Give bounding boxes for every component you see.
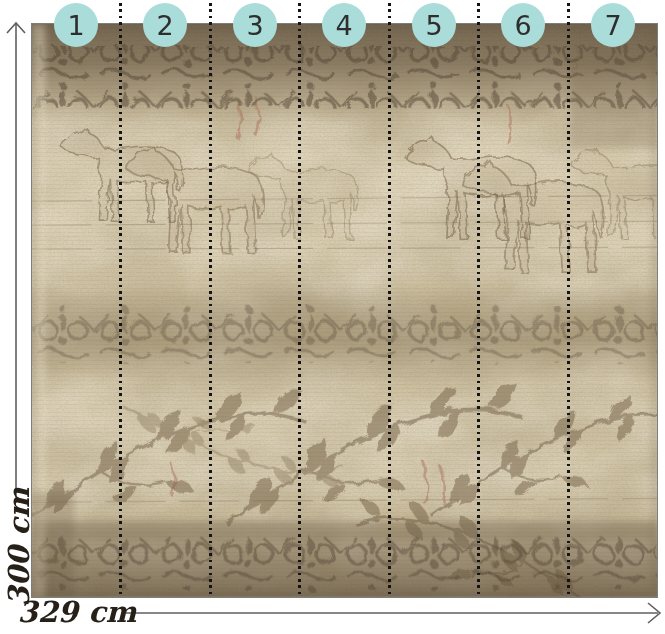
panel-number: 2 (156, 12, 173, 39)
panel-badge-6: 6 (501, 3, 545, 47)
mural-preview (31, 23, 658, 598)
panel-number: 5 (425, 12, 442, 39)
panel-badge-1: 1 (54, 3, 98, 47)
height-dimension-arrow (0, 16, 34, 502)
panel-separator (567, 3, 570, 597)
panel-number: 6 (514, 12, 531, 39)
panel-number: 7 (604, 12, 621, 39)
panel-separator (477, 3, 480, 597)
panel-separator (209, 3, 212, 597)
width-dimension-arrow (118, 598, 665, 630)
panel-number: 4 (335, 12, 352, 39)
panel-separator (119, 3, 122, 597)
panel-badge-5: 5 (412, 3, 456, 47)
panel-badge-2: 2 (143, 3, 187, 47)
panel-number: 1 (67, 12, 84, 39)
panel-separator (298, 3, 301, 597)
panel-badge-3: 3 (233, 3, 277, 47)
panel-badge-7: 7 (591, 3, 635, 47)
height-dimension-label: 300 cm (2, 488, 36, 607)
panel-badge-4: 4 (322, 3, 366, 47)
panel-number: 3 (246, 12, 263, 39)
mural-texture (32, 24, 657, 597)
width-dimension-label: 329 cm (18, 595, 137, 629)
wallpaper-panel-diagram: 1 2 3 4 5 6 7 300 cm 329 cm (0, 0, 665, 634)
panel-separator (388, 3, 391, 597)
